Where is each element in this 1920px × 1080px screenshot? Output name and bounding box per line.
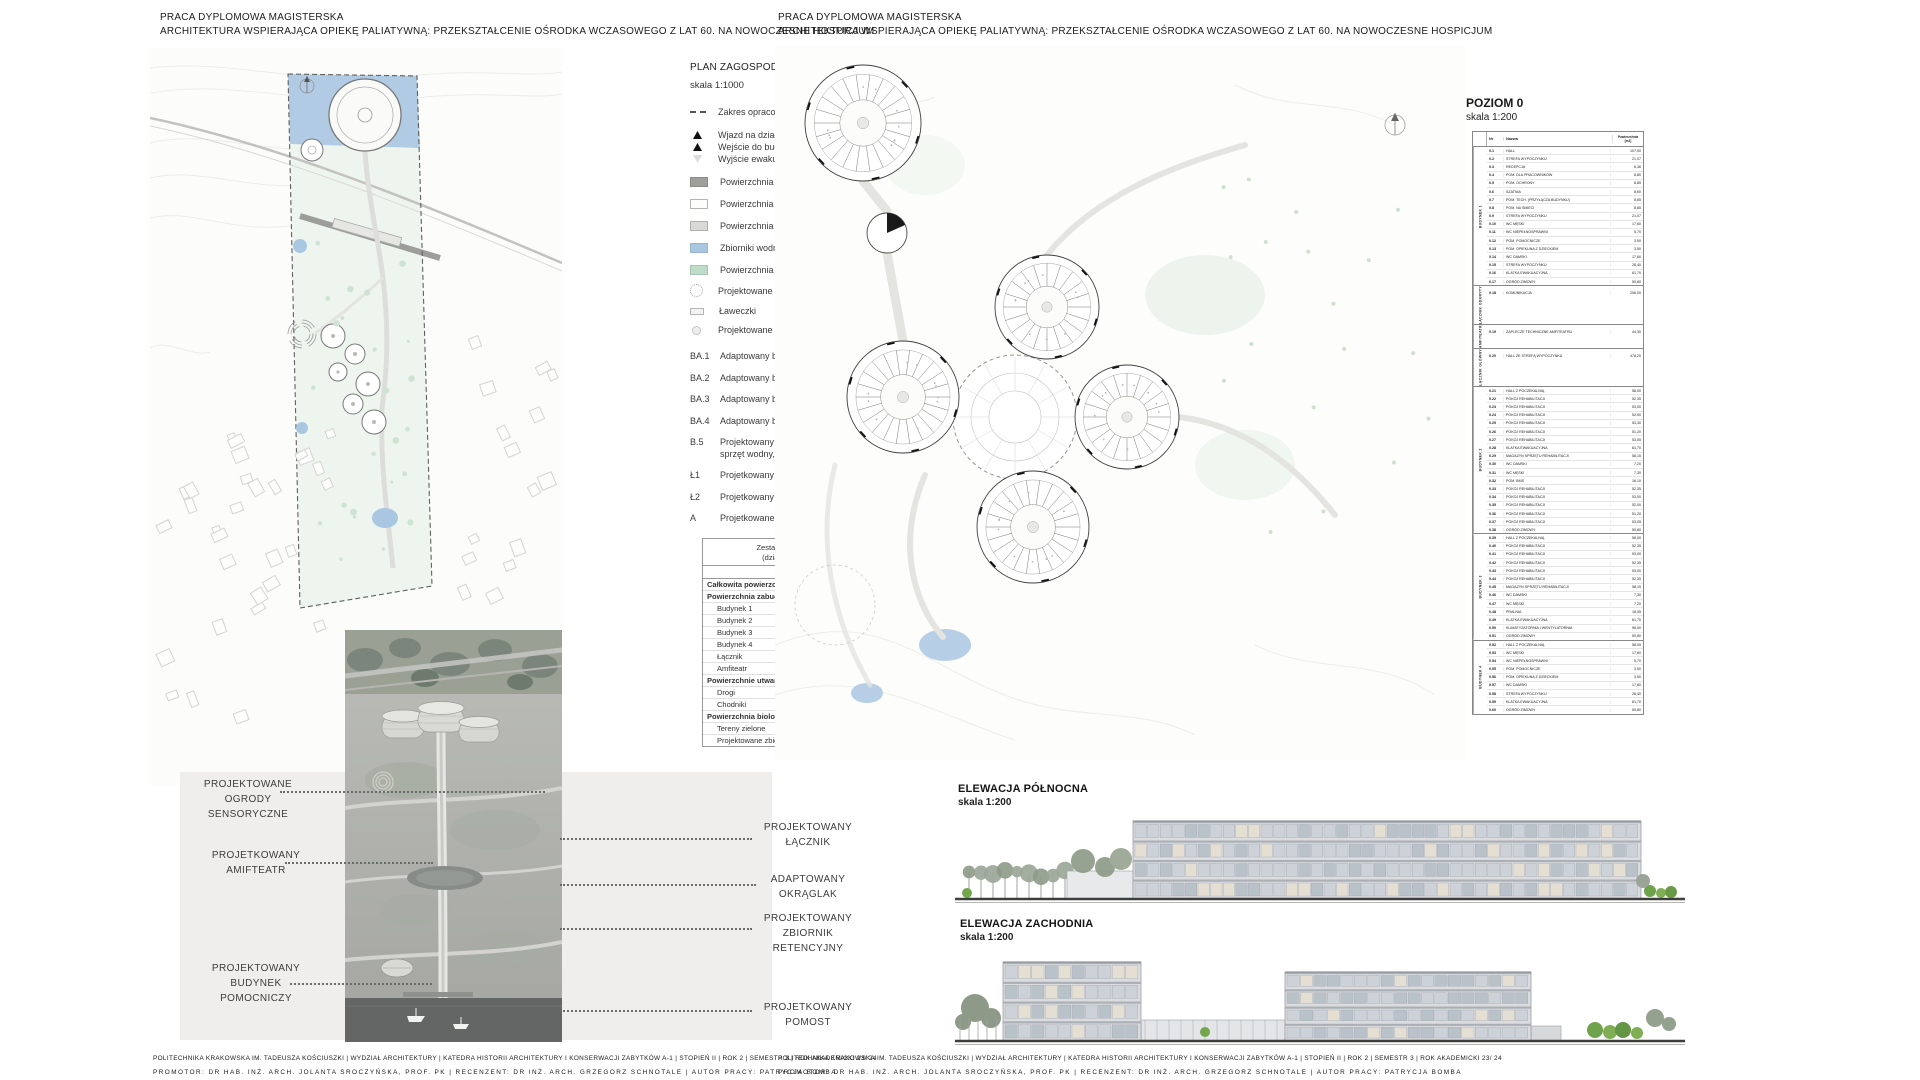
room-row: 0.31 WC MĘSKI 7,30 [1487,469,1643,477]
legend-code: Ł2 [690,492,720,504]
thesis-type-title: PRACA DYPLOMOWA MAGISTERSKA [778,11,1492,25]
room-area: 52,35 [1610,487,1643,491]
room-row: 0.29 MAGAZYN SPRZĘTU REHABILITACJI 58,15 [1487,453,1643,461]
room-name: OGRÓD ZIMOWY [1503,528,1610,532]
room-name: KLIMATYZATORNIA I WENTYLATORNIA [1503,626,1610,630]
room-row: 0.4 POM. DLA PRACOWNIKÓW 8,80 [1487,172,1643,180]
room-area: 6,36 [1610,165,1643,169]
room-number: 0.10 [1487,222,1503,226]
leader-line [560,884,756,886]
room-number: 0.42 [1487,561,1503,565]
room-number: 0.35 [1487,503,1503,507]
room-row: 0.10 WC MĘSKI 17,60 [1487,221,1643,229]
room-area: 17,60 [1610,222,1643,226]
elevation-west-render [955,948,1685,1048]
room-number: 0.58 [1487,692,1503,696]
room-number: 0.47 [1487,602,1503,606]
room-name: POM. POMOCNICZE [1503,667,1610,671]
room-area: 17,60 [1610,651,1643,655]
room-name: WC DAMSKI [1503,593,1610,597]
room-number: 0.3 [1487,165,1503,169]
room-number: 0.53 [1487,651,1503,655]
room-area: 52,35 [1610,561,1643,565]
room-name: POKÓJ REHABILITACJI [1503,544,1610,548]
room-row: 0.33 POKÓJ REHABILITACJI 52,35 [1487,485,1643,493]
room-name: STREFA WYPOCZYNKU [1503,692,1610,696]
room-area: 58,15 [1610,585,1643,589]
room-area: 53,05 [1610,520,1643,524]
room-number: 0.32 [1487,479,1503,483]
room-row: 0.44 POKÓJ REHABILITACJI 52,35 [1487,575,1643,583]
room-area: 53,05 [1610,438,1643,442]
room-row: 0.42 POKÓJ REHABILITACJI 52,35 [1487,559,1643,567]
room-group-rows: 0.20 HALL ZE STREFĄ WYPOCZYNKU 478,20 [1487,349,1643,386]
room-row: 0.43 POKÓJ REHABILITACJI 53,00 [1487,567,1643,575]
room-number: 0.25 [1487,421,1503,425]
room-row: 0.39 HALL Z POCZEKALNIĄ 58,00 [1487,534,1643,542]
room-group-rows: 0.19 ZAPLECZE TECHNICZNE AMFITEATRU 44,3… [1487,325,1643,348]
room-area: 7,30 [1610,593,1643,597]
room-name: POKÓJ REHABILITACJI [1503,421,1610,425]
room-number: 0.18 [1487,291,1503,295]
room-number: 0.54 [1487,659,1503,663]
room-number: 0.22 [1487,397,1503,401]
room-row: 0.12 POM. POMOCNICZE 3,50 [1487,237,1643,245]
elevation-west-title: ELEWACJA ZACHODNIA [960,918,1093,930]
room-area: 50,80 [1610,634,1643,638]
room-row: 0.17 OGRÓD ZIMOWY 50,80 [1487,278,1643,285]
room-group-rows: 0.39 HALL Z POCZEKALNIĄ 58,00 0.40 POKÓJ… [1487,534,1643,639]
room-name: STREFA WYPOCZYNKU [1503,214,1610,218]
room-number: 0.23 [1487,405,1503,409]
room-row: 0.52 HALL Z POCZEKALNIĄ 58,00 [1487,641,1643,649]
room-name: WC DAMSKI [1503,683,1610,687]
leader-line [560,928,752,930]
room-row: 0.15 STREFA WYPOCZYNKU 26,40 [1487,262,1643,270]
room-area: 61,70 [1610,700,1643,704]
room-name: HALL Z POCZEKALNIĄ [1503,643,1610,647]
room-number: 0.19 [1487,330,1503,334]
room-name: POM. OPIEKUNA Z DZIECKIEM [1503,675,1610,679]
room-row: 0.53 WC MĘSKI 17,60 [1487,649,1643,657]
room-number: 0.39 [1487,536,1503,540]
room-group-rows: 0.52 HALL Z POCZEKALNIĄ 58,00 0.53 WC MĘ… [1487,641,1643,714]
room-name: SZATNIA [1503,190,1610,194]
room-area: 3,50 [1610,667,1643,671]
room-area: 52,35 [1610,397,1643,401]
leader-line [285,862,433,864]
room-row: 0.9 STREFA WYPOCZYNKU 21,07 [1487,213,1643,221]
room-area: 21,07 [1610,214,1643,218]
room-group-label: BUDYNEK 4 [1473,641,1487,714]
room-row: 0.26 POKÓJ REHABILITACJI 51,20 [1487,428,1643,436]
room-name: KLATKA EWAKUACYJNA [1503,700,1610,704]
room-table-group: ŁĄCZNIK ODKRYTY 0.18 KOMUNIKACJA 206,00 [1473,286,1643,325]
room-row: 0.34 POKÓJ REHABILITACJI 53,00 [1487,494,1643,502]
room-number: 0.8 [1487,206,1503,210]
room-name: HALL [1503,149,1610,153]
room-row: 0.5 POM. OCHRONY 8,85 [1487,180,1643,188]
legend-swatch-icon [693,131,702,139]
room-number: 0.46 [1487,593,1503,597]
room-number: 0.49 [1487,618,1503,622]
room-name: WC MĘSKI [1503,602,1610,606]
room-area: 53,00 [1610,569,1643,573]
room-name: HALL Z POCZEKALNIĄ [1503,536,1610,540]
room-number: 0.36 [1487,512,1503,516]
room-col-nr: Nr [1487,137,1503,141]
room-number: 0.43 [1487,569,1503,573]
floor-plan-title: POZIOM 0 [1466,96,1523,110]
room-area: 52,00 [1610,413,1643,417]
room-number: 0.33 [1487,487,1503,491]
room-number: 0.57 [1487,683,1503,687]
room-row: 0.6 SZATNIA 8,60 [1487,188,1643,196]
room-row: 0.60 OGRÓD ZIMOWY 50,80 [1487,706,1643,713]
room-row: 0.22 POKÓJ REHABILITACJI 52,35 [1487,395,1643,403]
room-row: 0.30 WC DAMSKI 7,20 [1487,461,1643,469]
room-number: 0.15 [1487,263,1503,267]
room-area: 52,00 [1610,503,1643,507]
room-row: 0.11 WC NIEPEŁNOSPRAWNI 5,70 [1487,229,1643,237]
elevation-north-title: ELEWACJA PÓŁNOCNA [958,783,1088,795]
room-number: 0.41 [1487,552,1503,556]
room-row: 0.55 POM. POMOCNICZE 3,50 [1487,665,1643,673]
room-name: ZAPLECZE TECHNICZNE AMFITEATRU [1503,330,1610,334]
right-footer-line2: PROMOTOR: DR HAB. INŻ. ARCH. JOLANTA SRO… [778,1069,1462,1076]
room-name: KLATKA EWAKUACYJNA [1503,618,1610,622]
elevation-north-scale: skala 1:200 [958,797,1011,808]
room-name: OGRÓD ZIMOWY [1503,708,1610,712]
room-group-label: BUDYNEK 2 [1473,387,1487,533]
callout-connector: PROJEKTOWANY ŁĄCZNIK [752,820,864,850]
room-row: 0.23 POKÓJ REHABILITACJI 53,00 [1487,403,1643,411]
room-name: STREFA WYPOCZYNKU [1503,157,1610,161]
leader-line [560,838,752,840]
room-area: 107,00 [1610,149,1643,153]
legend-code: BA.3 [690,394,720,406]
room-schedule-table: Nr Nazwa Powierzchnia [m2] BUDYNEK 1 0.1… [1472,131,1644,715]
room-number: 0.1 [1487,149,1503,153]
room-row: 0.27 POKÓJ REHABILITACJI 53,05 [1487,436,1643,444]
room-number: 0.21 [1487,389,1503,393]
room-row: 0.50 KLIMATYZATORNIA I WENTYLATORNIA 98,… [1487,625,1643,633]
room-row: 0.13 POM. OPIEKUNA Z DZIECKIEM 3,50 [1487,245,1643,253]
room-area: 8,60 [1610,190,1643,194]
room-area: 61,70 [1610,618,1643,622]
room-name: WC DAMSKI [1503,255,1610,259]
leader-line [280,791,545,793]
room-number: 0.9 [1487,214,1503,218]
room-name: POKÓJ REHABILITACJI [1503,512,1610,516]
room-name: WC MĘSKI [1503,471,1610,475]
room-area: 44,30 [1610,330,1643,334]
room-name: POKÓJ REHABILITACJI [1503,495,1610,499]
room-name: POM. POMOCNICZE [1503,239,1610,243]
room-name: STREFA WYPOCZYNKU [1503,263,1610,267]
room-number: 0.5 [1487,181,1503,185]
room-area: 53,00 [1610,405,1643,409]
room-number: 0.7 [1487,198,1503,202]
room-number: 0.20 [1487,354,1503,358]
room-name: POKÓJ REHABILITACJI [1503,438,1610,442]
room-number: 0.17 [1487,280,1503,284]
legend-swatch-icon [690,111,706,113]
room-name: POKÓJ REHABILITACJI [1503,397,1610,401]
room-row: 0.56 POM. OPIEKUNA Z DZIECKIEM 3,50 [1487,674,1643,682]
room-area: 50,80 [1610,280,1643,284]
room-area: 7,20 [1610,462,1643,466]
room-area: 18,35 [1610,610,1643,614]
room-row: 0.21 HALL Z POCZEKALNIĄ 58,00 [1487,387,1643,395]
room-number: 0.31 [1487,471,1503,475]
legend-item-label: Zbiorniki wodny [720,243,783,253]
room-area: 58,00 [1610,389,1643,393]
room-number: 0.13 [1487,247,1503,251]
room-name: WC DAMSKI [1503,462,1610,466]
room-name: POM. OPIEKUNA Z DZIECKIEM [1503,247,1610,251]
room-number: 0.28 [1487,446,1503,450]
room-name: PRALNIA [1503,610,1610,614]
room-area: 8,85 [1610,198,1643,202]
room-area: 3,50 [1610,239,1643,243]
left-footer-line1: POLITECHNIKA KRAKOWSKA IM. TADEUSZA KOŚC… [153,1055,877,1062]
room-row: 0.36 POKÓJ REHABILITACJI 51,20 [1487,510,1643,518]
room-name: MAGAZYN SPRZĘTU REHABILITACJI [1503,585,1610,589]
room-name: POKÓJ REHABILITACJI [1503,405,1610,409]
room-group-label: ŁĄCZNIK ODKRYTY [1473,286,1487,324]
room-number: 0.30 [1487,462,1503,466]
room-name: KLATKA EWAKUACYJNA [1503,446,1610,450]
room-row: 0.20 HALL ZE STREFĄ WYPOCZYNKU 478,20 [1487,349,1643,363]
room-row: 0.48 PRALNIA 18,35 [1487,608,1643,616]
room-number: 0.14 [1487,255,1503,259]
thesis-type-title: PRACA DYPLOMOWA MAGISTERSKA [160,11,874,25]
thesis-subject-title: ARCHITEKTURA WSPIERAJĄCA OPIEKĘ PALIATYW… [160,25,874,39]
elevation-west-scale: skala 1:200 [960,932,1013,943]
legend-item-label: Ławeczki [719,306,756,316]
room-table-group: ŁĄCZNIK GŁÓWNY 0.20 HALL ZE STREFĄ WYPOC… [1473,349,1643,387]
right-footer-line1: POLITECHNIKA KRAKOWSKA IM. TADEUSZA KOŚC… [778,1055,1502,1062]
room-area: 61,70 [1610,446,1643,450]
room-number: 0.48 [1487,610,1503,614]
legend-swatch-icon [690,265,708,275]
callout-round-building: ADAPTOWANY OKRĄGLAK [752,872,864,902]
room-area: 8,80 [1610,173,1643,177]
room-row: 0.58 STREFA WYPOCZYNKU 26,40 [1487,690,1643,698]
room-group-rows: 0.1 HALL 107,00 0.2 STREFA WYPOCZYNKU 21… [1487,147,1643,285]
room-name: POM. NA ŚMIECI [1503,206,1610,210]
room-name: MAGAZYN SPRZĘTU REHABILITACJI [1503,454,1610,458]
thesis-subject-title: ARCHITEKTURA WSPIERAJĄCA OPIEKĘ PALIATYW… [778,25,1492,39]
room-name: POKÓJ REHABILITACJI [1503,520,1610,524]
room-table-group: BUDYNEK 1 0.1 HALL 107,00 0.2 STREFA WYP… [1473,147,1643,286]
room-area: 16,10 [1610,479,1643,483]
room-area: 58,15 [1610,454,1643,458]
room-name: OGRÓD ZIMOWY [1503,634,1610,638]
room-name: POM. BMS [1503,479,1610,483]
legend-code: BA.1 [690,351,720,363]
room-area: 53,00 [1610,552,1643,556]
room-name: POKÓJ REHABILITACJI [1503,487,1610,491]
room-row: 0.19 ZAPLECZE TECHNICZNE AMFITEATRU 44,3… [1487,325,1643,339]
room-number: 0.24 [1487,413,1503,417]
room-name: POKÓJ REHABILITACJI [1503,569,1610,573]
room-number: 0.45 [1487,585,1503,589]
callout-pier: PROJETKOWANY POMOST [752,1000,864,1030]
room-row: 0.24 POKÓJ REHABILITACJI 52,00 [1487,412,1643,420]
room-area: 206,00 [1610,291,1643,295]
room-name: POKÓJ REHABILITACJI [1503,503,1610,507]
room-number: 0.38 [1487,528,1503,532]
room-row: 0.32 POM. BMS 16,10 [1487,477,1643,485]
room-group-label: BUDYNEK 3 [1473,534,1487,639]
room-number: 0.59 [1487,700,1503,704]
room-area: 53,30 [1610,421,1643,425]
room-area: 26,40 [1610,692,1643,696]
room-row: 0.40 POKÓJ REHABILITACJI 52,35 [1487,543,1643,551]
room-name: POKÓJ REHABILITACJI [1503,561,1610,565]
elevation-north-render [955,813,1685,905]
room-row: 0.25 POKÓJ REHABILITACJI 53,30 [1487,420,1643,428]
room-row: 0.28 KLATKA EWAKUACYJNA 61,70 [1487,444,1643,452]
room-row: 0.45 MAGAZYN SPRZĘTU REHABILITACJI 58,15 [1487,584,1643,592]
room-number: 0.12 [1487,239,1503,243]
room-number: 0.37 [1487,520,1503,524]
room-row: 0.38 OGRÓD ZIMOWY 50,80 [1487,526,1643,533]
room-table-group: BUDYNEK 4 0.52 HALL Z POCZEKALNIĄ 58,00 … [1473,641,1643,714]
room-number: 0.11 [1487,230,1503,234]
aerial-render-image [345,630,562,1042]
room-row: 0.8 POM. NA ŚMIECI 8,85 [1487,204,1643,212]
legend-code: BA.2 [690,373,720,385]
room-number: 0.6 [1487,190,1503,194]
room-row: 0.47 WC MĘSKI 7,20 [1487,600,1643,608]
room-area: 52,35 [1610,577,1643,581]
room-name: WC MĘSKI [1503,222,1610,226]
room-table-body: BUDYNEK 1 0.1 HALL 107,00 0.2 STREFA WYP… [1473,147,1643,714]
room-name: POKÓJ REHABILITACJI [1503,413,1610,417]
room-number: 0.2 [1487,157,1503,161]
room-area: 17,60 [1610,683,1643,687]
room-area: 50,80 [1610,708,1643,712]
room-area: 7,20 [1610,602,1643,606]
room-area: 21,07 [1610,157,1643,161]
room-area: 5,70 [1610,230,1643,234]
room-group-rows: 0.21 HALL Z POCZEKALNIĄ 58,00 0.22 POKÓJ… [1487,387,1643,533]
room-number: 0.27 [1487,438,1503,442]
room-number: 0.50 [1487,626,1503,630]
room-name: WC NIEPEŁNOSPRAWNI [1503,230,1610,234]
legend-swatch-icon [690,243,708,253]
room-area: 52,35 [1610,544,1643,548]
room-area: 58,00 [1610,536,1643,540]
leader-line [560,1010,752,1012]
room-area: 50,80 [1610,528,1643,532]
room-row: 0.2 STREFA WYPOCZYNKU 21,07 [1487,155,1643,163]
room-row: 0.7 POM. TECH. (PRZYŁĄCZA BUDYNKU) 8,85 [1487,196,1643,204]
floor-plan-scale: skala 1:200 [1466,112,1517,123]
room-number: 0.29 [1487,454,1503,458]
room-area: 478,20 [1610,354,1643,358]
room-row: 0.18 KOMUNIKACJA 206,00 [1487,286,1643,300]
room-row: 0.35 POKÓJ REHABILITACJI 52,00 [1487,502,1643,510]
room-name: POKÓJ REHABILITACJI [1503,430,1610,434]
room-row: 0.41 POKÓJ REHABILITACJI 53,00 [1487,551,1643,559]
room-area: 5,70 [1610,659,1643,663]
legend-swatch-icon [690,221,708,231]
room-name: KLATKA EWAKUACYJNA [1503,271,1610,275]
legend-code: BA.4 [690,416,720,428]
room-area: 53,00 [1610,495,1643,499]
room-row: 0.16 KLATKA EWAKUACYJNA 61,70 [1487,270,1643,278]
room-area: 17,60 [1610,255,1643,259]
room-table-group: BUDYNEK 3 0.39 HALL Z POCZEKALNIĄ 58,00 … [1473,534,1643,640]
room-number: 0.56 [1487,675,1503,679]
leader-line [290,983,432,985]
room-name: RECEPCJA [1503,165,1610,169]
room-col-area: Powierzchnia [m2] [1612,135,1643,143]
room-col-name: Nazwa [1503,137,1612,141]
legend-swatch-icon [690,177,708,187]
room-area: 58,00 [1610,643,1643,647]
room-row: 0.3 RECEPCJA 6,36 [1487,163,1643,171]
room-name: POKÓJ REHABILITACJI [1503,552,1610,556]
room-number: 0.51 [1487,634,1503,638]
floor-plan-drawing [775,45,1465,760]
legend-swatch-icon [693,155,702,163]
room-area: 3,50 [1610,675,1643,679]
room-name: POKÓJ REHABILITACJI [1503,577,1610,581]
room-name: POM. OCHRONY [1503,181,1610,185]
room-area: 51,20 [1610,430,1643,434]
room-row: 0.49 KLATKA EWAKUACYJNA 61,70 [1487,616,1643,624]
room-number: 0.44 [1487,577,1503,581]
room-name: POM. TECH. (PRZYŁĄCZA BUDYNKU) [1503,198,1610,202]
room-row: 0.14 WC DAMSKI 17,60 [1487,253,1643,261]
room-area: 26,40 [1610,263,1643,267]
legend-swatch-icon [690,308,704,315]
room-row: 0.59 KLATKA EWAKUACYJNA 61,70 [1487,698,1643,706]
room-area: 61,70 [1610,271,1643,275]
room-area: 8,85 [1610,181,1643,185]
room-number: 0.34 [1487,495,1503,499]
callout-sensory-gardens: PROJEKTOWANE OGRODY SENSORYCZNE [182,777,314,822]
room-number: 0.4 [1487,173,1503,177]
room-name: HALL ZE STREFĄ WYPOCZYNKU [1503,354,1610,358]
room-area: 8,85 [1610,206,1643,210]
room-table-header: Nr Nazwa Powierzchnia [m2] [1473,132,1643,147]
legend-code: A [690,513,720,525]
room-area: 3,50 [1610,247,1643,251]
room-number: 0.16 [1487,271,1503,275]
legend-code: Ł1 [690,470,720,482]
legend-swatch-icon [690,199,708,209]
room-group-label: BUDYNEK 1 [1473,147,1487,285]
room-number: 0.40 [1487,544,1503,548]
room-name: WC NIEPEŁNOSPRAWNI [1503,659,1610,663]
callout-retention-pond: PROJEKTOWANY ZBIORNIK RETENCYJNY [752,911,864,956]
room-name: HALL Z POCZEKALNIĄ [1503,389,1610,393]
room-number: 0.55 [1487,667,1503,671]
legend-swatch-icon [692,326,701,335]
room-number: 0.52 [1487,643,1503,647]
room-row: 0.51 OGRÓD ZIMOWY 50,80 [1487,633,1643,640]
room-area: 51,20 [1610,512,1643,516]
room-number: 0.60 [1487,708,1503,712]
room-name: OGRÓD ZIMOWY [1503,280,1610,284]
room-row: 0.1 HALL 107,00 [1487,147,1643,155]
